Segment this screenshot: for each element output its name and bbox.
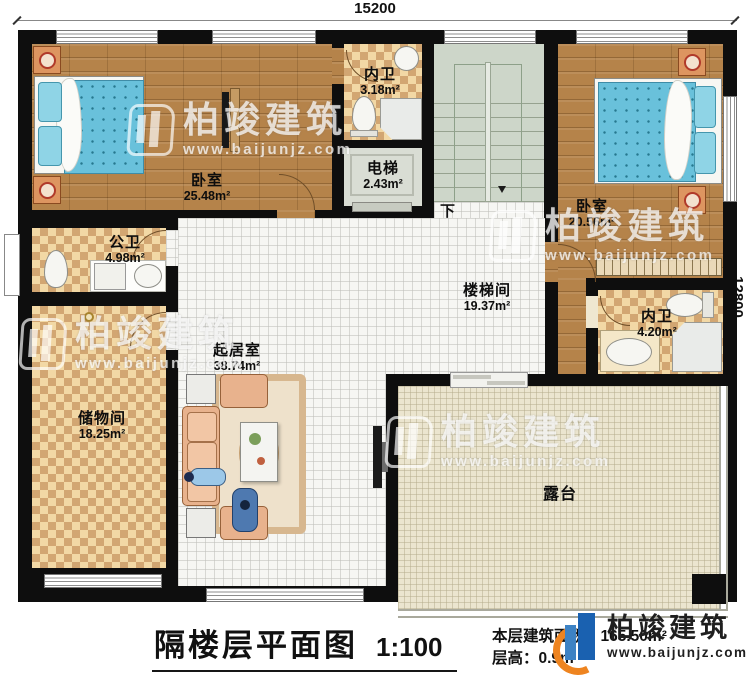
washer-icon	[94, 263, 126, 290]
window	[206, 588, 364, 602]
nightstand	[33, 176, 61, 204]
person-head	[240, 500, 250, 510]
room-label-bedroom-right: 卧室20.56m²	[542, 198, 642, 230]
plan-title-group: 隔楼层平面图 1:100	[152, 620, 457, 672]
room-label-stair-hall: 楼梯间19.37m²	[437, 282, 537, 314]
plan-scale: 1:100	[376, 632, 443, 663]
bay-window	[4, 234, 20, 296]
table-decor	[257, 457, 265, 465]
window	[44, 574, 162, 588]
door-gap	[545, 242, 558, 282]
staircase	[434, 44, 544, 202]
room-label-storage: 储物间18.25m²	[52, 410, 152, 442]
nightstand	[678, 186, 706, 214]
brand-url: www.baijunjz.com	[607, 646, 748, 660]
dimension-tick-right	[730, 16, 739, 25]
stair-stringer	[485, 62, 491, 202]
person	[232, 488, 258, 532]
tv-icon	[222, 92, 229, 148]
dimension-top-label: 15200	[340, 0, 410, 18]
tv-backboard	[230, 88, 240, 152]
elevator-door	[352, 202, 412, 212]
person-head	[184, 472, 194, 482]
toilet-icon	[352, 96, 376, 132]
sliding-door-panel	[453, 375, 491, 379]
coffee-table	[240, 422, 278, 482]
window	[212, 30, 316, 44]
window	[56, 30, 158, 44]
person	[190, 468, 226, 486]
sliding-door	[450, 372, 528, 388]
room-label-bath-right: 内卫4.20m²	[607, 308, 707, 340]
stair-down-arrow-icon	[498, 186, 506, 197]
room-label-bath-top: 内卫3.18m²	[340, 66, 420, 98]
room-label-bedroom-left: 卧室25.48m²	[155, 172, 259, 204]
side-table	[186, 374, 216, 404]
sink-icon	[606, 338, 652, 366]
table-decor	[249, 433, 261, 445]
bed-pillow	[38, 82, 62, 122]
sofa	[182, 406, 220, 506]
side-table	[186, 508, 216, 538]
toilet-tank	[350, 130, 378, 137]
room-label-public-bath: 公卫4.98m²	[76, 234, 174, 266]
door-gap	[586, 296, 598, 328]
room-label-terrace: 露台	[512, 486, 608, 504]
wardrobe	[596, 258, 722, 276]
pendant-lamp-icon	[84, 312, 94, 322]
nightstand	[33, 46, 61, 74]
plan-title: 隔楼层平面图	[154, 620, 358, 665]
brand-name: 柏竣建筑	[607, 614, 748, 642]
tv-icon	[373, 426, 382, 488]
room-label-elevator: 电梯2.43m²	[346, 160, 420, 192]
tv-stand	[382, 442, 388, 472]
dimension-top-line	[18, 20, 737, 21]
room-label-living: 起居室38.74m²	[188, 342, 286, 374]
window	[723, 96, 737, 202]
armchair	[220, 374, 268, 408]
door-gap	[166, 312, 178, 350]
door-gap	[277, 210, 315, 218]
floor-plan-canvas: 15200 12800	[0, 0, 750, 675]
window	[576, 30, 688, 44]
bed-pillow	[694, 86, 716, 128]
brand-logo-icon	[556, 610, 600, 664]
corridor-right	[558, 278, 586, 374]
bed-pillow	[38, 126, 62, 166]
bed-pillow	[694, 132, 716, 174]
sink-icon	[134, 264, 162, 288]
sliding-door-panel	[487, 381, 525, 385]
stairs-down-label: 下	[440, 200, 466, 220]
brand-logo: 柏竣建筑 www.baijunjz.com	[556, 610, 748, 664]
toilet-icon	[44, 250, 68, 288]
terrace-corner-column	[692, 574, 726, 604]
nightstand	[678, 48, 706, 76]
window	[444, 30, 536, 44]
